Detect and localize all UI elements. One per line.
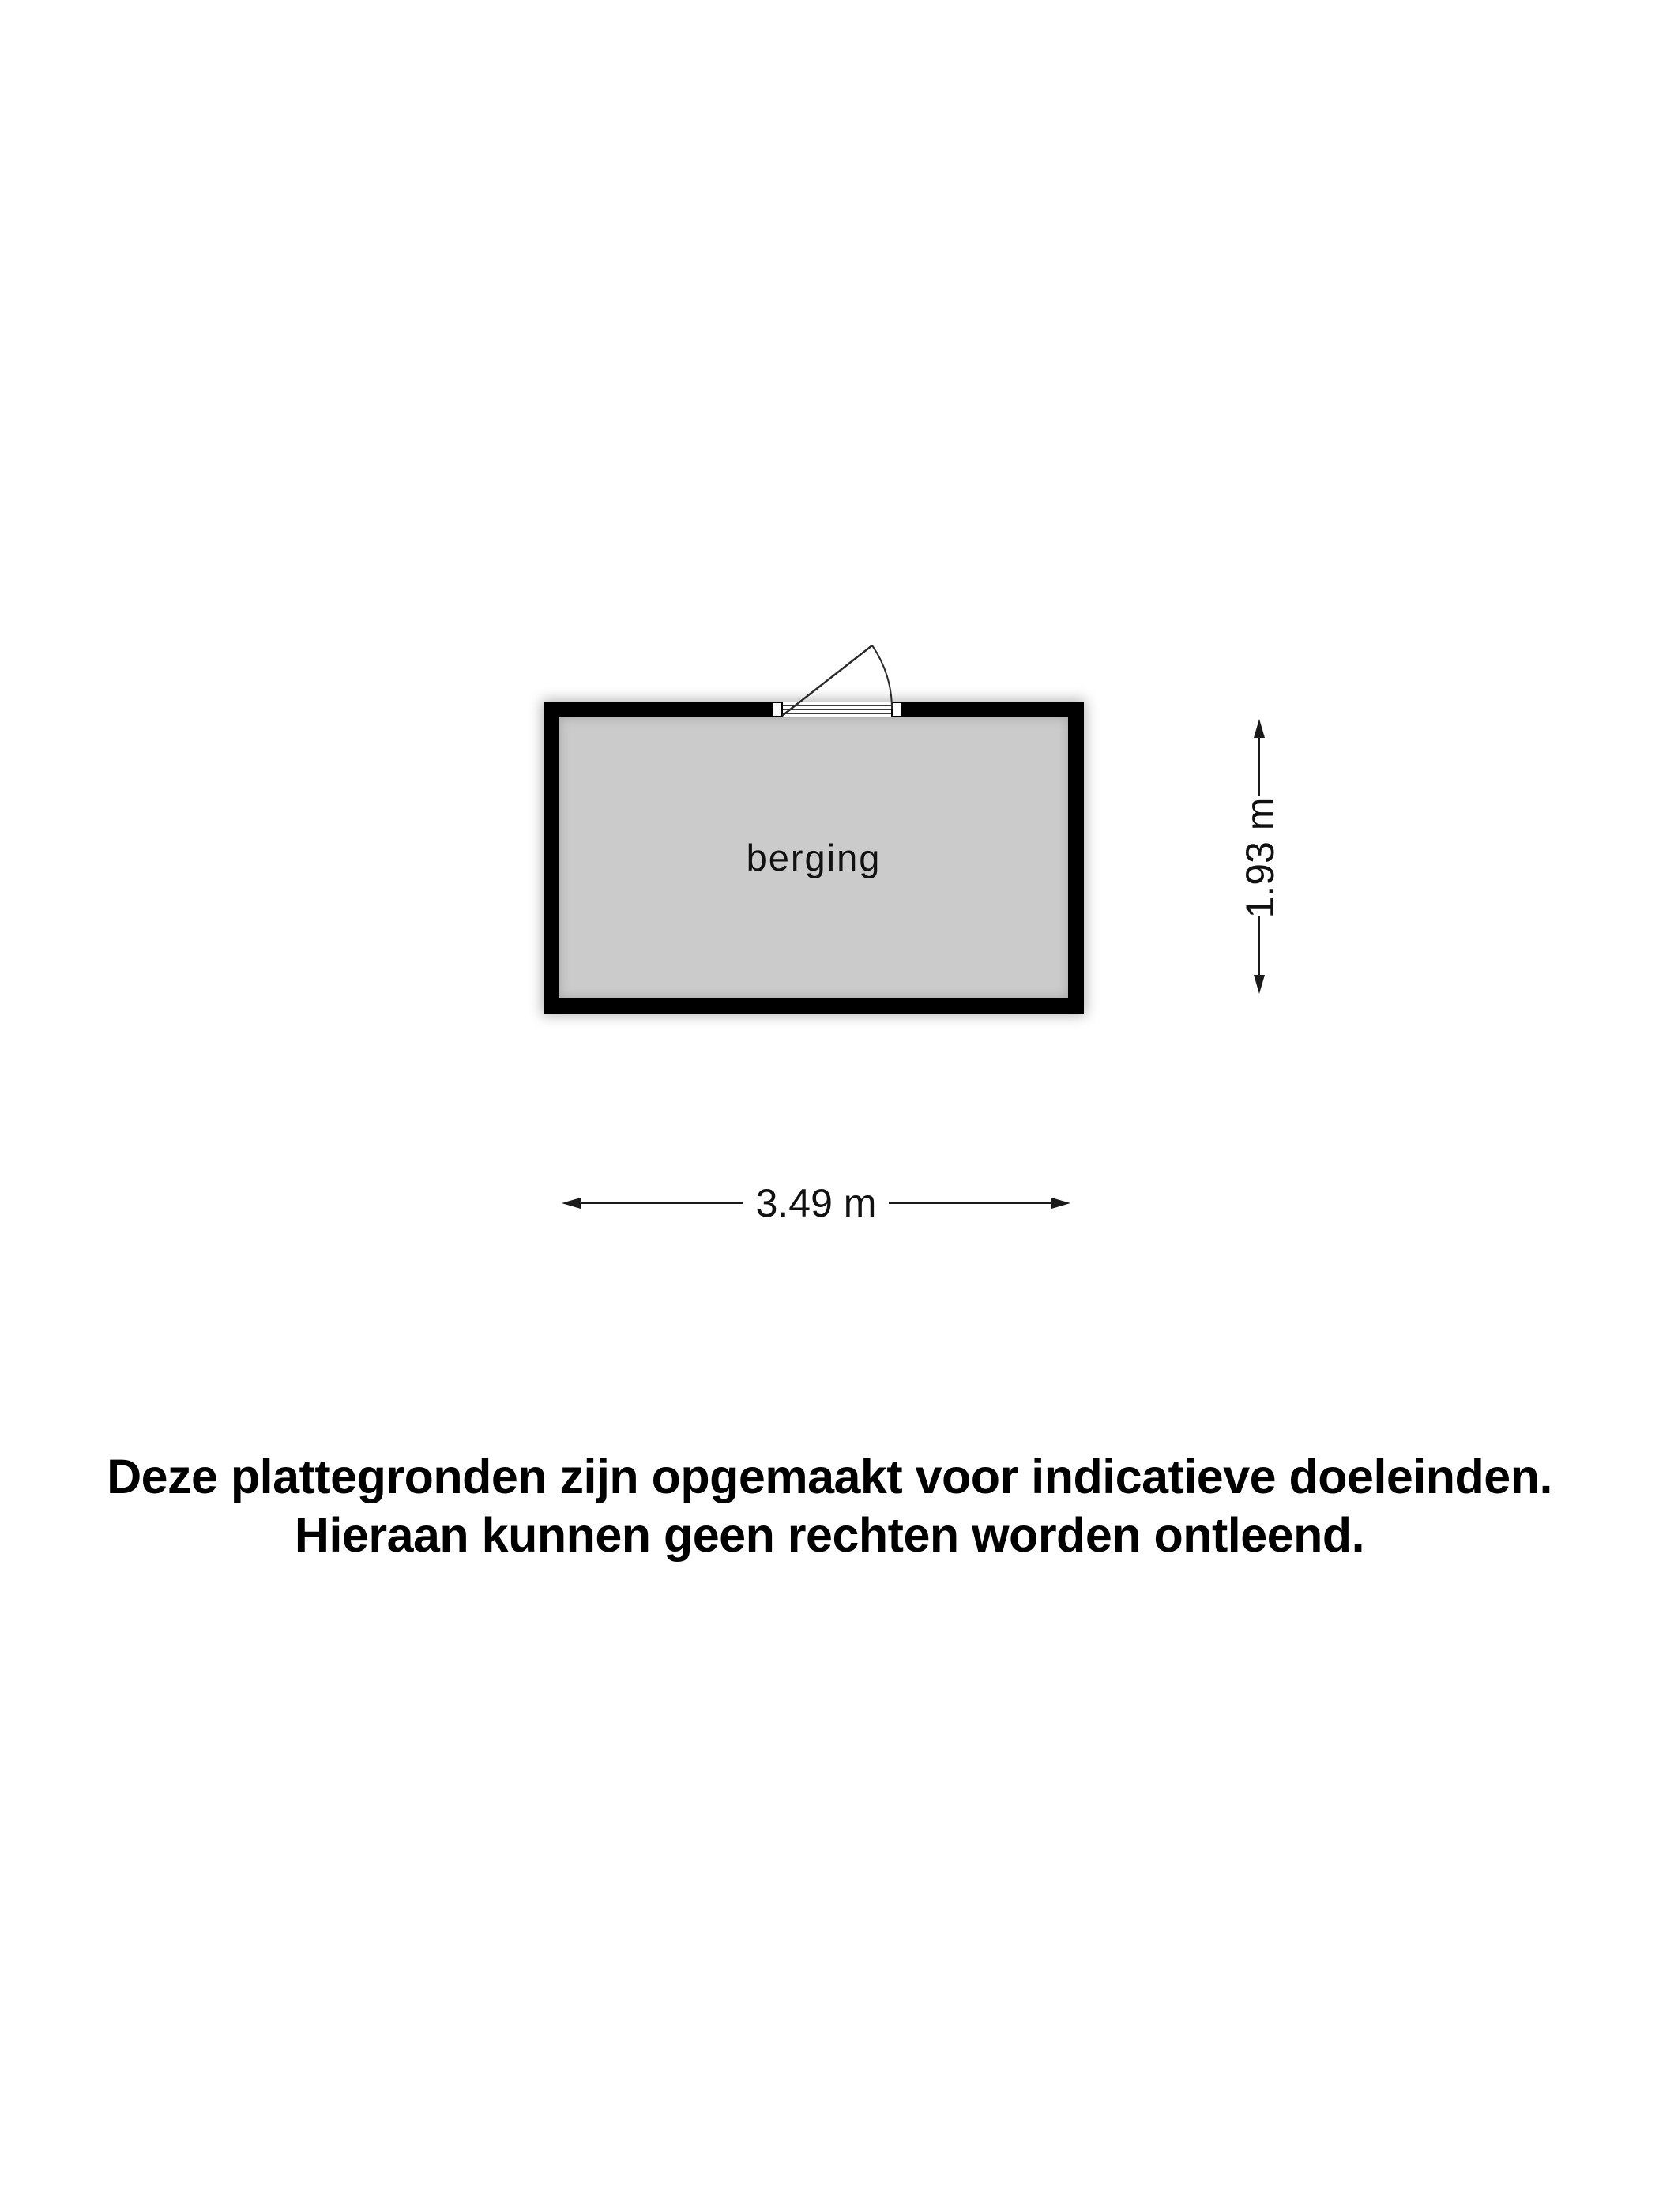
room-label: berging	[747, 836, 882, 879]
door-swing-arc	[872, 645, 892, 709]
dimension-line	[889, 1202, 1051, 1204]
dimension-line	[581, 1202, 743, 1204]
disclaimer: Deze plattegronden zijn opgemaakt voor i…	[0, 1447, 1659, 1564]
dimension-height-label: 1.93 m	[1240, 798, 1280, 919]
dimension-line	[1258, 916, 1260, 978]
floorplan-page: berging 1.93 m 3.49 m Deze plattegrond	[0, 0, 1659, 2212]
dimension-width-label: 3.49 m	[743, 1183, 890, 1223]
arrow-right-icon	[1051, 1198, 1070, 1209]
disclaimer-line-1: Deze plattegronden zijn opgemaakt voor i…	[0, 1447, 1659, 1506]
dimension-horizontal: 3.49 m	[562, 1183, 1070, 1223]
dimension-line	[1258, 735, 1260, 796]
disclaimer-line-2: Hieraan kunnen geen rechten worden ontle…	[0, 1506, 1659, 1564]
arrow-down-icon	[1254, 975, 1265, 994]
room-berging: berging	[544, 702, 1084, 1014]
door	[766, 632, 908, 723]
door-jamb-left	[773, 702, 782, 717]
door-jamb-right	[892, 702, 901, 717]
arrow-left-icon	[562, 1198, 581, 1209]
dimension-vertical: 1.93 m	[1232, 719, 1288, 994]
